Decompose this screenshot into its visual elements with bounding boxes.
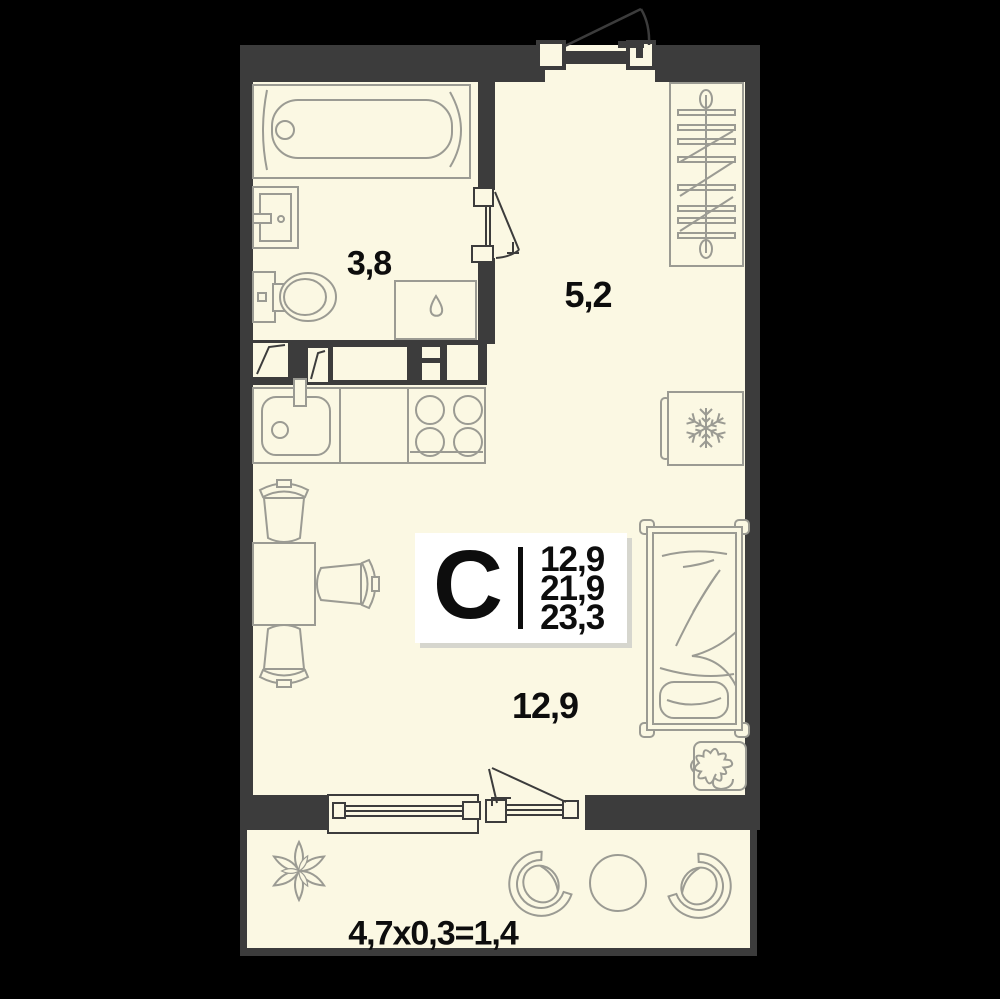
- balcony-round-table: [590, 855, 646, 911]
- entrance-door: [538, 9, 654, 68]
- bed: [640, 520, 749, 737]
- hallway-area-label: 5,2: [564, 274, 611, 316]
- total-area-value: 23,3: [540, 603, 604, 632]
- floor-plan: 3,8 5,2 12,9 4,7х0,3=1,4 С 12,9 21,9 23,…: [0, 0, 1000, 999]
- living-room-area-label: 12,9: [512, 685, 578, 727]
- bathtub: [253, 85, 470, 178]
- washing-machine: [395, 281, 476, 339]
- dining-table: [253, 543, 315, 625]
- potted-plant: [691, 742, 746, 790]
- dining-chair: [260, 625, 308, 687]
- apartment-stat-card: С 12,9 21,9 23,3: [415, 533, 627, 643]
- fridge: [661, 392, 743, 465]
- toilet: [253, 272, 336, 322]
- bathroom-area-label: 3,8: [347, 245, 391, 284]
- floor-plan-svg: [0, 0, 1000, 999]
- balcony-area-label: 4,7х0,3=1,4: [348, 915, 518, 954]
- balcony-window: [328, 795, 480, 833]
- dining-chair: [317, 560, 379, 608]
- apartment-type-letter: С: [433, 536, 503, 633]
- dining-chair: [260, 480, 308, 542]
- bathroom-sink: [253, 187, 298, 248]
- stat-card-divider: [518, 547, 523, 629]
